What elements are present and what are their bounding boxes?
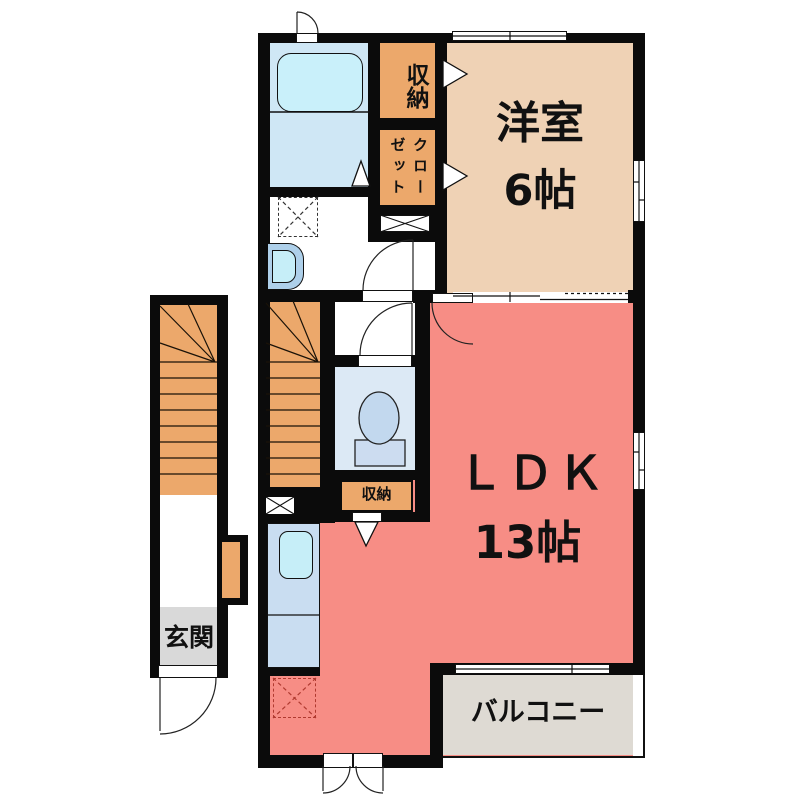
wall-kitchen-bottom	[258, 668, 320, 676]
window-balcony	[455, 664, 610, 674]
wall-western-left	[435, 43, 447, 290]
wall-toilet-right	[415, 302, 430, 520]
label-closet: クローゼット	[383, 136, 431, 200]
washing-machine-space	[278, 197, 318, 237]
arc-bath-top-door	[297, 12, 318, 33]
wall-toilet-bottom	[335, 470, 415, 480]
room-toilet	[335, 367, 415, 470]
label-western-room-size: 6帖	[447, 168, 633, 215]
sliding-door-western-ldk	[453, 292, 628, 303]
wall-stub-ldk-right	[628, 290, 645, 303]
door-leaf-double-right	[353, 753, 383, 768]
window-western-top	[452, 31, 567, 41]
label-balcony: バルコニー	[443, 698, 633, 728]
door-leaf-double-left	[323, 753, 353, 768]
hall-area	[335, 302, 415, 357]
gwall-right-upper	[217, 295, 228, 535]
wall-balcony-left	[430, 663, 443, 765]
balcony-outline-bottom	[443, 756, 645, 758]
arc-double-door-right	[356, 766, 383, 793]
label-western-room: 洋室	[447, 100, 633, 148]
door-leaf-bath-top	[296, 33, 318, 43]
balcony-outline-right	[643, 675, 645, 758]
label-entrance: 玄関	[158, 624, 220, 652]
door-leaf-washroom	[362, 290, 413, 302]
under-stair-void	[266, 497, 294, 514]
label-storage-upper: 収納	[397, 54, 427, 118]
bathtub	[277, 53, 363, 112]
gwall-hinge-right	[217, 660, 228, 678]
floor-plan: 洋室 6帖 ＬＤＫ 13帖 バルコニー 玄関 収納 クローゼット 収納	[0, 0, 800, 800]
washbasin-bowl	[272, 250, 296, 283]
fridge-space	[273, 678, 316, 718]
gwall-left	[150, 295, 160, 678]
window-ldk-right	[633, 432, 645, 490]
label-ldk: ＬＤＫ	[435, 448, 630, 499]
arc-double-door-left	[323, 766, 350, 793]
entrance-door-leaf	[158, 665, 218, 678]
outdoor-stairs	[160, 305, 217, 495]
arc-entrance-door	[160, 678, 216, 734]
interior-stairs	[266, 300, 320, 490]
meter-box	[222, 542, 240, 598]
storage-wc-opening	[352, 512, 382, 522]
window-western-right	[633, 160, 645, 222]
kitchen-sink	[279, 531, 313, 579]
wall-bathroom-bottom	[258, 187, 370, 197]
label-ldk-size: 13帖	[435, 518, 620, 568]
door-leaf-toilet	[358, 355, 412, 367]
closet-lower-box	[380, 215, 430, 232]
wall-storage-wc-bottom	[335, 512, 430, 522]
label-storage-wc: 収納	[340, 486, 413, 503]
door-leaf-ldk	[432, 293, 473, 303]
